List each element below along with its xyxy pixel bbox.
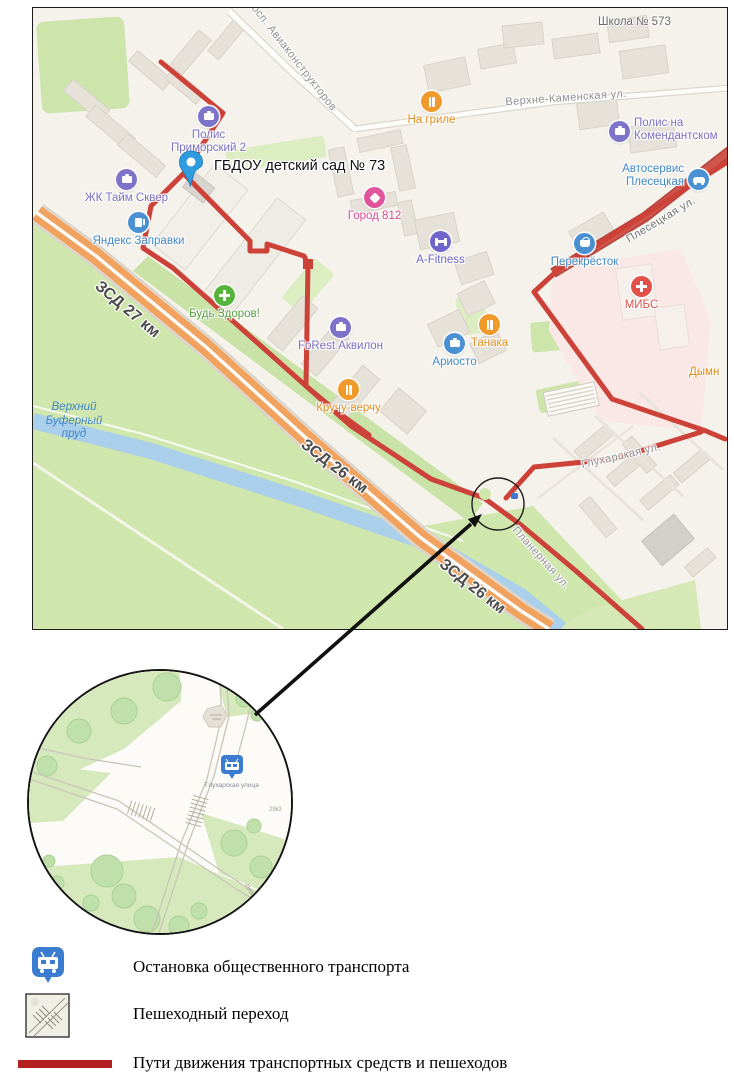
poi-forest-akvilon: FoRest Аквилон — [330, 317, 351, 338]
legend-crossing-label: Пешеходный переход — [133, 1004, 289, 1024]
poi-yandex-zapravki: Яндекс Заправки — [128, 212, 149, 233]
poi-bud-zdorov: Будь Здоров! — [214, 285, 235, 306]
residential-icon — [330, 317, 351, 338]
poi-layer: ПолисПриморский 2 ЖК Тайм Сквер Яндекс З… — [33, 8, 727, 629]
food-icon — [338, 379, 359, 400]
inset-bus-stop-label: Глухарская улица — [205, 782, 259, 789]
residential-icon — [116, 169, 137, 190]
poi-perekrestok: Перекрёсток — [574, 233, 595, 254]
poi-ariosto: Ариосто — [444, 333, 465, 354]
pharmacy-cross-icon — [214, 285, 235, 306]
residential-icon — [609, 121, 630, 142]
fitness-icon — [430, 231, 451, 252]
map-canvas: просп. Авиаконструкторов Верхне-Каменска… — [32, 7, 728, 630]
legend-bus-stop-label: Остановка общественного транспорта — [133, 957, 409, 977]
poi-kruchu-verchu: Кручу-верчу — [338, 379, 359, 400]
pedestrian-crossing-icon — [25, 993, 70, 1038]
inset-house-label: 29к3 — [269, 807, 282, 813]
legend-route-label: Пути движения транспортных средств и пеш… — [133, 1053, 507, 1073]
residential-icon — [444, 333, 465, 354]
route-scheme-document: просп. Авиаконструкторов Верхне-Каменска… — [0, 0, 734, 1081]
poi-zhk-time-square: ЖК Тайм Сквер — [116, 169, 137, 190]
bus-stop-icon — [30, 945, 66, 985]
poi-a-fitness: A-Fitness — [430, 231, 451, 252]
fuel-icon — [128, 212, 149, 233]
food-icon — [421, 91, 442, 112]
magnifier-inset: Глухарская улица Планерная ул. 29к3 — [27, 669, 293, 935]
poi-autoservice-plesetskaya: АвтосервисПлесецкая — [688, 169, 709, 190]
supermarket-icon — [574, 233, 595, 254]
poi-na-grile: На гриле — [421, 91, 442, 112]
route-line-swatch — [18, 1060, 112, 1068]
medical-cross-icon — [631, 276, 652, 297]
food-icon — [479, 314, 500, 335]
destination-label: ГБДОУ детский сад № 73 — [214, 158, 385, 174]
poi-gorod-812: Город 812 — [364, 187, 385, 208]
destination-pin-icon — [177, 149, 207, 191]
beauty-icon — [364, 187, 385, 208]
poi-polis-primorsky-2: ПолисПриморский 2 — [198, 106, 219, 127]
residential-icon — [198, 106, 219, 127]
poi-mibs: МИБС — [631, 276, 652, 297]
poi-tanaka: Танака — [479, 314, 500, 335]
poi-polis-komendantsky: Полис наКомендантском — [609, 121, 630, 142]
poi-dymn-label: Дымн — [689, 366, 719, 378]
car-service-icon — [688, 169, 709, 190]
